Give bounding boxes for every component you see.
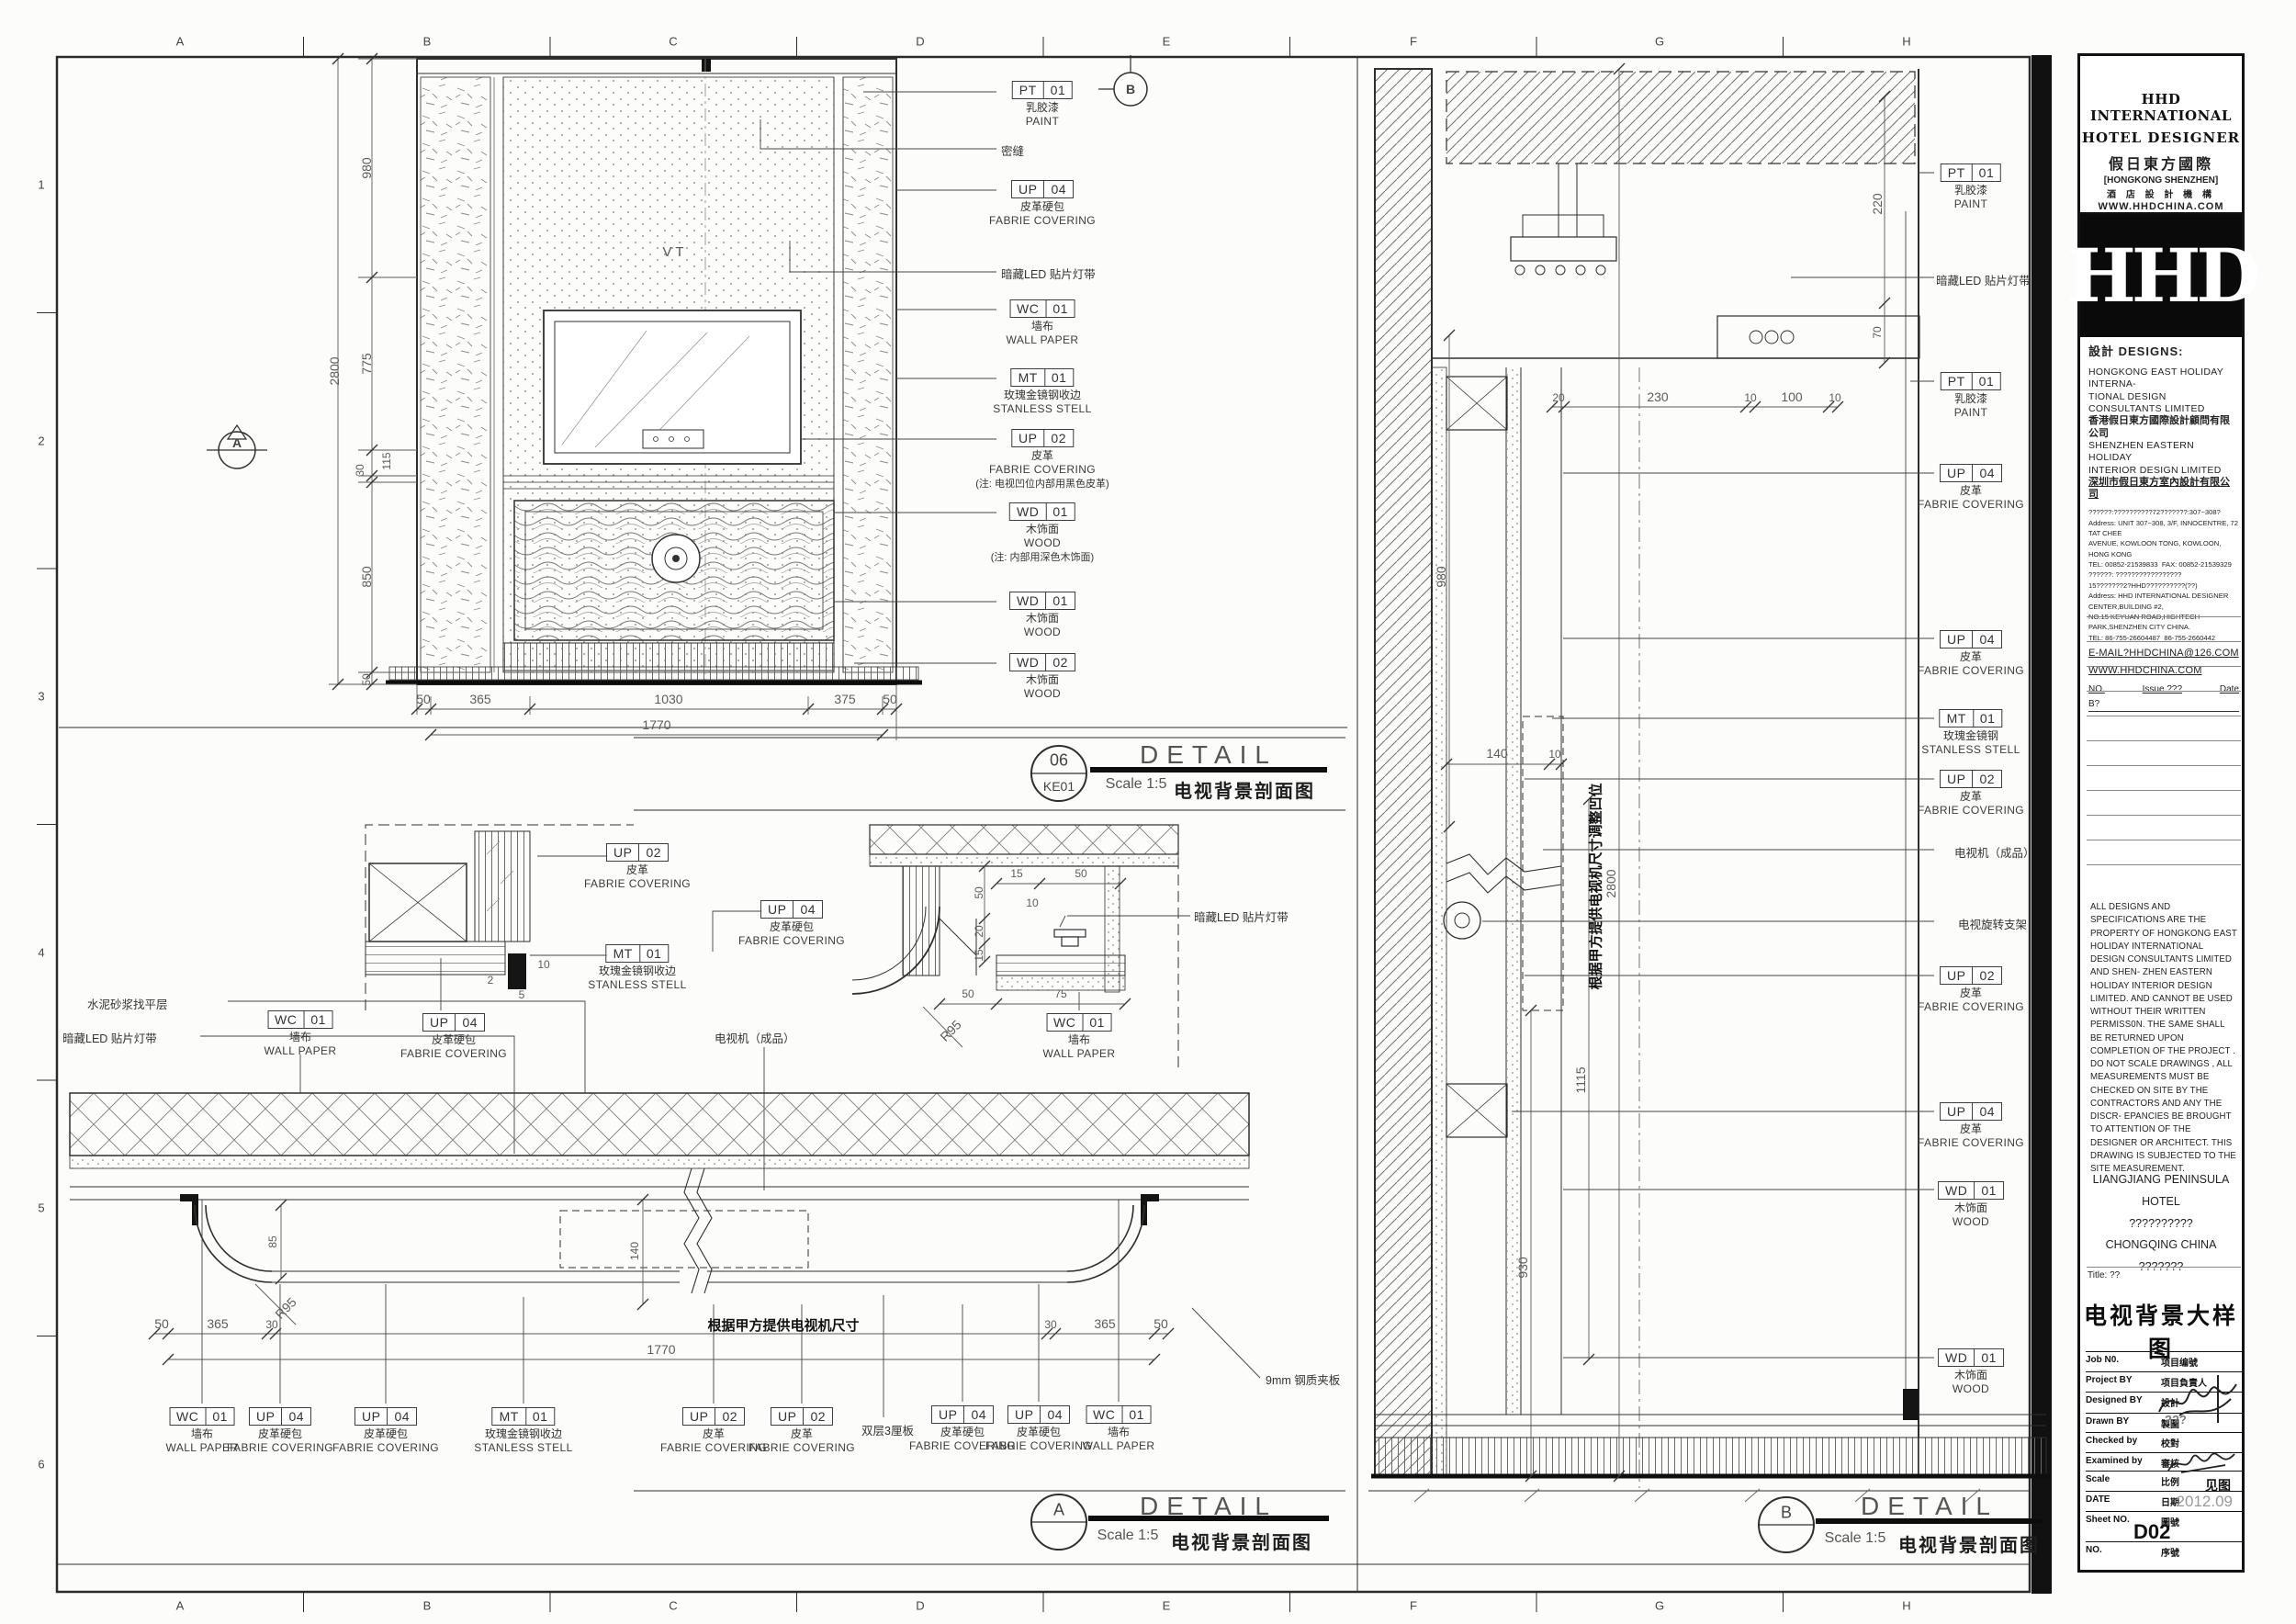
rule	[2087, 790, 2241, 791]
field-en: Project BY	[2086, 1375, 2161, 1389]
tag-cn: 皮革硬包	[332, 1427, 439, 1442]
tag-en: WALL PAPER	[1083, 1439, 1155, 1454]
address-line: TEL: 00852-21539833 FAX: 00852-21539329	[2088, 559, 2239, 570]
material-tag: PT01乳胶漆PAINT	[1941, 164, 2001, 212]
grid-letter: E	[1163, 1599, 1171, 1613]
tag-cn: 皮革硬包	[227, 1427, 333, 1442]
material-tag: PT01乳胶漆PAINT	[1941, 372, 2001, 421]
tag-num: 04	[1973, 465, 2001, 481]
rule	[2087, 765, 2241, 766]
tag-code: WC	[1047, 1014, 1083, 1031]
dim-label: 20	[1552, 391, 1564, 404]
rule	[2087, 716, 2241, 716]
tag-code: UP	[1941, 771, 1973, 787]
dim-label: 1770	[642, 717, 670, 732]
field-en: Job N0.	[2086, 1355, 2161, 1369]
leader-note: 暗藏LED 贴片灯带	[1936, 271, 2031, 288]
tag-num: 01	[1973, 164, 2001, 181]
dim-label: 1770	[647, 1342, 675, 1357]
email: E-MAIL?HHDCHINA@126.COM	[2088, 648, 2239, 660]
tag-cn: 皮革	[1918, 1122, 2024, 1137]
tag-en: FABRIE COVERING	[985, 1439, 1092, 1454]
issue-no: NO.	[2088, 684, 2105, 696]
grid-letter: B	[423, 1599, 432, 1613]
dim-label: 365	[469, 692, 490, 706]
tag-note: (注: 内部用深色木饰面)	[991, 551, 1094, 564]
tag-num: 04	[1973, 1103, 2001, 1120]
field-row: Examined by審核	[2086, 1452, 2242, 1470]
leader-note: 暗藏LED 贴片灯带	[1001, 265, 1096, 282]
rule	[2087, 641, 2241, 642]
detail-number: B	[1781, 1504, 1792, 1523]
tag-code: WC	[170, 1408, 206, 1425]
dim-label: 980	[359, 157, 374, 178]
tag-code: UP	[1941, 465, 1973, 481]
tag-num: 02	[639, 844, 668, 861]
company-line: HONGKONG EAST HOLIDAY INTERNA-	[2088, 367, 2239, 390]
tag-cn: 皮革硬包	[989, 200, 1096, 215]
leader-note: 9mm 钢质夹板	[1266, 1370, 1340, 1388]
material-tag: WC01墙布WALL PAPER	[264, 1010, 337, 1059]
material-tag: UP04皮革硬包FABRIE COVERING	[989, 180, 1096, 229]
date-value: 2012.09	[2177, 1493, 2233, 1511]
material-tag: WD01木饰面WOOD(注: 内部用深色木饰面)	[991, 502, 1094, 564]
dim-label: 15	[973, 949, 985, 961]
dim-label: 220	[1870, 193, 1885, 214]
grid-number: 2	[38, 434, 44, 448]
dim-label: 1030	[654, 692, 682, 706]
tag-cn: 皮革硬包	[985, 1426, 1092, 1440]
dim-label: 1115	[1573, 1066, 1588, 1093]
tag-code: PT	[1941, 164, 1973, 181]
tag-en: FABRIE COVERING	[227, 1441, 333, 1456]
tag-num: 01	[1046, 592, 1075, 609]
drawing-sheet: A B C D E F G H A B C D E F G H 1 2 3 4 …	[0, 0, 2296, 1624]
site-note: 根据甲方提供电视机尺寸调整凹位	[1586, 783, 1605, 989]
grid-letter: F	[1410, 35, 1417, 49]
address-line: NO.15 KEYUAN ROAD,HIGHTECH PARK,SHENZHEN…	[2088, 612, 2239, 633]
leader-note: 水泥砂浆找平层	[87, 995, 168, 1012]
grid-letter: D	[916, 1599, 924, 1613]
detail-scale: Scale 1:5	[1106, 776, 1167, 793]
dim-label: 10	[1548, 748, 1560, 761]
fax: FAX: 00852-21539329	[2162, 560, 2232, 569]
tag-cn: 皮革	[1918, 484, 2024, 499]
field-en: DATE	[2086, 1494, 2161, 1508]
field-cn: 校對	[2161, 1436, 2179, 1449]
material-tag: WD01木饰面WOOD	[1009, 592, 1075, 640]
dim-label: 850	[359, 566, 374, 587]
tag-en: FABRIE COVERING	[1918, 804, 2024, 818]
material-tag: UP04皮革硬包FABRIE COVERING	[400, 1013, 507, 1062]
title-block: HHD INTERNATIONAL HOTEL DESIGNER 假日東方國際 …	[2077, 53, 2245, 1573]
tag-code: UP	[1008, 1406, 1041, 1423]
tag-cn: 皮革	[584, 863, 691, 878]
grid-letter: D	[916, 35, 924, 49]
tag-num: 04	[456, 1014, 484, 1031]
grid-letter: H	[1902, 35, 1910, 49]
address-line: ??????: ?????????????????	[2088, 570, 2239, 580]
dim-label: 140	[628, 1242, 641, 1260]
field-row: Designed BY設計	[2086, 1392, 2242, 1409]
tag-code: UP	[1941, 631, 1973, 648]
tag-cn: 墙布	[264, 1031, 337, 1045]
legal-notice: ALL DESIGNS AND SPECIFICATIONS ARE THE P…	[2090, 901, 2237, 1176]
dim-label: 50	[1075, 867, 1086, 880]
project-name: LIANGJIANG PENINSULA HOTEL ?????????? CH…	[2080, 1169, 2242, 1279]
tag-num: 01	[1975, 1182, 2003, 1199]
tag-num: 04	[1973, 631, 2001, 648]
material-tag: WD01木饰面WOOD	[1938, 1348, 2004, 1397]
tag-note: (注: 电视凹位内部用黑色皮革)	[975, 478, 1109, 491]
grid-number: 3	[38, 690, 44, 704]
glass-mark: V T	[662, 244, 683, 260]
tag-num: 02	[715, 1408, 744, 1425]
field-cn: 项目编號	[2161, 1355, 2198, 1369]
tag-cn: 木饰面	[1009, 673, 1075, 688]
detail-A-linework	[70, 825, 1260, 1417]
tag-en: FABRIE COVERING	[584, 877, 691, 892]
tag-en: PAINT	[1012, 115, 1073, 130]
firm-website: WWW.HHDCHINA.COM	[2080, 201, 2242, 212]
grid-letter: H	[1902, 1599, 1910, 1613]
tag-en: FABRIE COVERING	[748, 1441, 855, 1456]
field-cn: 設計	[2161, 1395, 2179, 1409]
tag-en: PAINT	[1941, 197, 2001, 212]
section-marker-a: A	[232, 435, 242, 450]
detail-number: 06	[1050, 751, 1068, 771]
material-tag: MT01玫瑰金镜钢收边STANLESS STELL	[993, 368, 1091, 417]
grid-letter: A	[176, 35, 185, 49]
detail-number: A	[1053, 1501, 1064, 1520]
dim-label: 365	[1094, 1316, 1115, 1331]
material-tag: PT01乳胶漆PAINT	[1012, 81, 1073, 130]
detail-title: DETAIL	[1140, 740, 1277, 770]
grid-letter: G	[1655, 1599, 1664, 1613]
material-tag: UP04皮革硬包FABRIE COVERING	[332, 1407, 439, 1456]
rule	[2087, 740, 2241, 741]
tag-cn: 木饰面	[1938, 1369, 2004, 1383]
detail-title-cn: 电视背景剖面图	[1171, 1528, 1312, 1554]
material-tag: MT01玫瑰金镜钢STANLESS STELL	[1921, 709, 2020, 758]
material-tag: WC01墙布WALL PAPER	[1083, 1405, 1155, 1454]
tag-en: STANLESS STELL	[1921, 743, 2020, 758]
material-tag: UP02皮革FABRIE COVERING	[1918, 770, 2024, 818]
dim-label: 375	[834, 692, 855, 706]
tag-en: FABRIE COVERING	[1918, 664, 2024, 679]
firm-name-cn: 假日東方國際	[2080, 152, 2242, 174]
tag-num: 01	[1044, 82, 1073, 98]
tag-cn: 乳胶漆	[1941, 392, 2001, 407]
tag-code: WD	[1939, 1182, 1975, 1199]
dim-label: 10	[1829, 391, 1840, 404]
dim-label: 5	[519, 988, 525, 1001]
leader-note: 电视机（成品）	[715, 1029, 795, 1046]
firm-name-2: HOTEL DESIGNER	[2080, 130, 2242, 146]
grid-letter: C	[669, 35, 677, 49]
company-line: TIONAL DESIGN CONSULTANTS LIMITED	[2088, 391, 2239, 415]
rule	[2087, 691, 2241, 692]
rule	[2087, 1267, 2241, 1268]
tag-code: WC	[1086, 1406, 1122, 1423]
tag-code: WD	[1010, 592, 1046, 609]
tag-num: 02	[1044, 430, 1073, 446]
company-line: INTERIOR DESIGN LIMITED	[2088, 465, 2239, 477]
tag-cn: 乳胶漆	[1012, 101, 1073, 116]
tag-en: FABRIE COVERING	[400, 1047, 507, 1062]
rule	[2087, 616, 2241, 617]
leader-note: 电视旋转支架	[1958, 915, 2027, 932]
grid-letter: B	[423, 35, 432, 49]
field-row: Project BY项目負責人	[2086, 1371, 2242, 1389]
tag-code: UP	[761, 901, 793, 918]
tag-en: STANLESS STELL	[474, 1441, 572, 1456]
tag-en: STANLESS STELL	[588, 978, 686, 993]
tag-num: 02	[1973, 967, 2001, 984]
tag-num: 01	[1975, 1349, 2003, 1366]
designs-label: 設計 DESIGNS:	[2088, 344, 2239, 359]
leader-note: 电视机（成品）	[1954, 843, 2035, 861]
dim-label: 50	[154, 1316, 169, 1331]
tag-num: 01	[526, 1408, 555, 1425]
leader-note: 暗藏LED 贴片灯带	[1194, 908, 1289, 925]
tag-num: 01	[1974, 710, 2002, 727]
tag-en: FABRIE COVERING	[1918, 1000, 2024, 1015]
material-tag: UP04皮革硬包FABRIE COVERING	[227, 1407, 333, 1456]
address-line: Address: HHD INTERNATIONAL DESIGNER CENT…	[2088, 591, 2239, 612]
title-label: Title: ??	[2088, 1270, 2120, 1280]
detail-scale: Scale 1:5	[1825, 1530, 1886, 1547]
detail-scale: Scale 1:5	[1097, 1528, 1159, 1544]
detail-ref: KE01	[1043, 779, 1075, 794]
tag-cn: 玫瑰金镜钢收边	[993, 389, 1091, 403]
material-tag: UP04皮革FABRIE COVERING	[1918, 1102, 2024, 1151]
tag-en: FABRIE COVERING	[989, 214, 1096, 229]
project-line: CHONGQING CHINA	[2080, 1235, 2242, 1257]
material-tag: UP02皮革FABRIE COVERING	[748, 1407, 855, 1456]
material-tag: UP02皮革FABRIE COVERING	[584, 843, 691, 892]
tag-code: WC	[268, 1011, 304, 1028]
firm-type-cn: 酒 店 設 計 機 構	[2080, 186, 2242, 200]
dim-label: 85	[266, 1235, 279, 1247]
dim-label: 365	[207, 1316, 228, 1331]
material-tag: UP04皮革FABRIE COVERING	[1918, 464, 2024, 513]
dim-label: 115	[380, 452, 393, 469]
tag-num: 01	[1045, 369, 1074, 386]
tag-num: 04	[1041, 1406, 1069, 1423]
tag-code: UP	[1941, 1103, 1973, 1120]
tag-code: PT	[1941, 373, 1973, 389]
dim-label: 980	[1434, 566, 1448, 587]
tag-en: FABRIE COVERING	[738, 934, 845, 949]
tag-code: WD	[1010, 654, 1046, 671]
leader-note: 双层3厘板	[861, 1421, 914, 1438]
tag-cn: 皮革	[748, 1427, 855, 1442]
tag-en: WOOD	[1938, 1382, 2004, 1397]
tag-code: MT	[1012, 369, 1045, 386]
dim-label: 775	[359, 353, 374, 374]
field-cn: 序號	[2161, 1545, 2179, 1559]
rule	[2087, 666, 2241, 667]
tag-cn: 墙布	[1043, 1033, 1116, 1048]
tag-en: FABRIE COVERING	[1918, 1136, 2024, 1151]
grid-letter: E	[1163, 35, 1171, 49]
dim-label: 50	[1154, 1316, 1168, 1331]
grid-number: 6	[38, 1458, 44, 1472]
detail-06-elevation	[386, 59, 922, 684]
tag-num: 02	[804, 1408, 832, 1425]
firm-header: HHD INTERNATIONAL HOTEL DESIGNER 假日東方國際 …	[2080, 56, 2242, 214]
dim-label: 30	[265, 1318, 277, 1331]
tag-cn: 皮革硬包	[738, 920, 845, 935]
tag-num: 04	[282, 1408, 310, 1425]
tag-code: UP	[683, 1408, 715, 1425]
tag-num: 01	[1046, 300, 1075, 317]
dim-label: 70	[1871, 326, 1884, 338]
material-tag: UP04皮革硬包FABRIE COVERING	[738, 900, 845, 949]
rule	[2087, 864, 2241, 865]
company-line: SHENZHEN EASTERN HOLIDAY	[2088, 440, 2239, 464]
dim-label: 100	[1781, 389, 1802, 404]
dim-label: 2800	[327, 356, 342, 385]
tag-cn: 乳胶漆	[1941, 184, 2001, 198]
grid-number: 4	[38, 946, 44, 960]
tag-en: WOOD	[1009, 687, 1075, 702]
field-en: Examined by	[2086, 1456, 2161, 1470]
grid-letter: C	[669, 1599, 677, 1613]
detail-title-cn: 电视背景剖面图	[1898, 1530, 2040, 1557]
tag-en: WOOD	[991, 536, 1094, 551]
material-tag: WC01墙布WALL PAPER	[1007, 299, 1079, 348]
dim-label: 2	[488, 974, 494, 987]
tag-en: WOOD	[1009, 626, 1075, 640]
material-tag: WD02木饰面WOOD	[1009, 653, 1075, 702]
field-row: Drawn BY製圖	[2086, 1413, 2242, 1430]
dim-label: 10	[1744, 391, 1756, 404]
tag-num: 04	[388, 1408, 416, 1425]
dim-label: 30	[1044, 1318, 1056, 1331]
issue-b: B?	[2088, 699, 2239, 712]
material-tag: UP02皮革FABRIE COVERING	[1918, 966, 2024, 1015]
tag-num: 01	[1083, 1014, 1111, 1031]
company-line-cn: 香港假日東方國際設計顧問有限公司	[2088, 415, 2239, 441]
dim-label: 20	[973, 925, 985, 937]
material-tag: WC01墙布WALL PAPER	[1043, 1013, 1116, 1062]
material-tag: UP04皮革FABRIE COVERING	[1918, 630, 2024, 679]
company-line-cn: 深圳市假日東方室內設計有限公司	[2088, 477, 2239, 502]
leader-note: 暗藏LED 贴片灯带	[62, 1029, 157, 1046]
tag-num: 01	[1122, 1406, 1151, 1423]
grid-number: 5	[38, 1201, 44, 1215]
field-en: NO.	[2086, 1545, 2161, 1559]
tag-num: 01	[304, 1011, 332, 1028]
site-note: 根据甲方提供电视机尺寸	[707, 1315, 859, 1335]
field-en: Drawn BY	[2086, 1416, 2161, 1430]
field-en: Checked by	[2086, 1436, 2161, 1449]
tag-code: UP	[423, 1014, 456, 1031]
tag-en: WALL PAPER	[1007, 333, 1079, 348]
leader-note: 密缝	[1001, 141, 1024, 159]
address-line: AVENUE, KOWLOON TONG, KOWLOON, HONG KONG	[2088, 538, 2239, 559]
detail-title: DETAIL	[1140, 1492, 1277, 1521]
dim-label: 10	[1026, 897, 1038, 909]
tag-cn: 木饰面	[1938, 1201, 2004, 1216]
tag-code: PT	[1013, 82, 1044, 98]
rule	[2087, 815, 2241, 816]
field-en: Scale	[2086, 1474, 2161, 1488]
tag-cn: 墙布	[1083, 1426, 1155, 1440]
tag-num: 01	[1973, 373, 2001, 389]
grid-number: 1	[38, 178, 44, 192]
grid-letter: G	[1655, 35, 1664, 49]
tag-en: FABRIE COVERING	[332, 1441, 439, 1456]
material-tag: MT01玫瑰金镜钢收边STANLESS STELL	[474, 1407, 572, 1456]
scale-value: 见图	[2205, 1476, 2231, 1494]
dim-label: 50	[360, 673, 373, 685]
website: WWW.HHDCHINA.COM	[2088, 665, 2239, 678]
dim-label: 230	[1647, 389, 1668, 404]
tag-num: 04	[1044, 181, 1073, 197]
tag-code: WD	[1010, 503, 1046, 520]
issue-row: NO.Issue ???Date	[2088, 684, 2239, 696]
rule	[2087, 840, 2241, 840]
dim-label: 50	[416, 692, 431, 706]
tag-cn: 木饰面	[1009, 612, 1075, 626]
tag-en: WALL PAPER	[264, 1044, 337, 1059]
grid-letter: A	[176, 1599, 185, 1613]
tag-code: UP	[932, 1406, 964, 1423]
tag-cn: 皮革	[1918, 650, 2024, 665]
tag-en: STANLESS STELL	[993, 402, 1091, 417]
material-tag: UP04皮革硬包FABRIE COVERING	[985, 1405, 1092, 1454]
dim-label: 30	[354, 464, 366, 476]
tag-code: UP	[771, 1408, 804, 1425]
tag-en: PAINT	[1941, 406, 2001, 421]
dim-label: 50	[973, 886, 985, 898]
tag-num: 04	[793, 901, 822, 918]
issue-label: Issue ???	[2143, 684, 2182, 696]
sheet-number-value: D02	[2133, 1520, 2170, 1544]
tag-cn: 墙布	[1007, 320, 1079, 334]
tag-code: WC	[1010, 300, 1046, 317]
tag-code: MT	[607, 945, 640, 962]
dim-label: 930	[1515, 1257, 1530, 1278]
field-en: Designed BY	[2086, 1395, 2161, 1409]
designs-block: 設計 DESIGNS: HONGKONG EAST HOLIDAY INTERN…	[2088, 344, 2239, 712]
tag-cn: 皮革	[975, 449, 1109, 464]
material-tag: UP02皮革FABRIE COVERING(注: 电视凹位内部用黑色皮革)	[975, 429, 1109, 491]
address-line: 15???????2?HHD??????????(??)	[2088, 581, 2239, 591]
dim-label: 10	[537, 958, 549, 971]
tag-code: WD	[1939, 1349, 1975, 1366]
tag-code: UP	[607, 844, 639, 861]
dim-label: 140	[1486, 746, 1507, 761]
material-tag: WD01木饰面WOOD	[1938, 1181, 2004, 1230]
dim-label: 50	[962, 987, 974, 1000]
tag-code: MT	[1941, 710, 1974, 727]
tag-cn: 皮革	[1918, 790, 2024, 805]
issue-date: Date	[2220, 684, 2239, 696]
field-row: Checked by校對	[2086, 1432, 2242, 1449]
address-line: Address: UNIT 307~308, 3/F, INNOCENTRE, …	[2088, 518, 2239, 539]
tag-code: UP	[250, 1408, 282, 1425]
material-tag: MT01玫瑰金镜钢收边STANLESS STELL	[588, 944, 686, 993]
firm-name-1: HHD INTERNATIONAL	[2080, 91, 2242, 124]
tag-cn: 玫瑰金镜钢收边	[474, 1427, 572, 1442]
detail-title-cn: 电视背景剖面图	[1174, 776, 1315, 803]
dim-label: 50	[883, 692, 897, 706]
tag-en: WOOD	[1938, 1215, 2004, 1230]
